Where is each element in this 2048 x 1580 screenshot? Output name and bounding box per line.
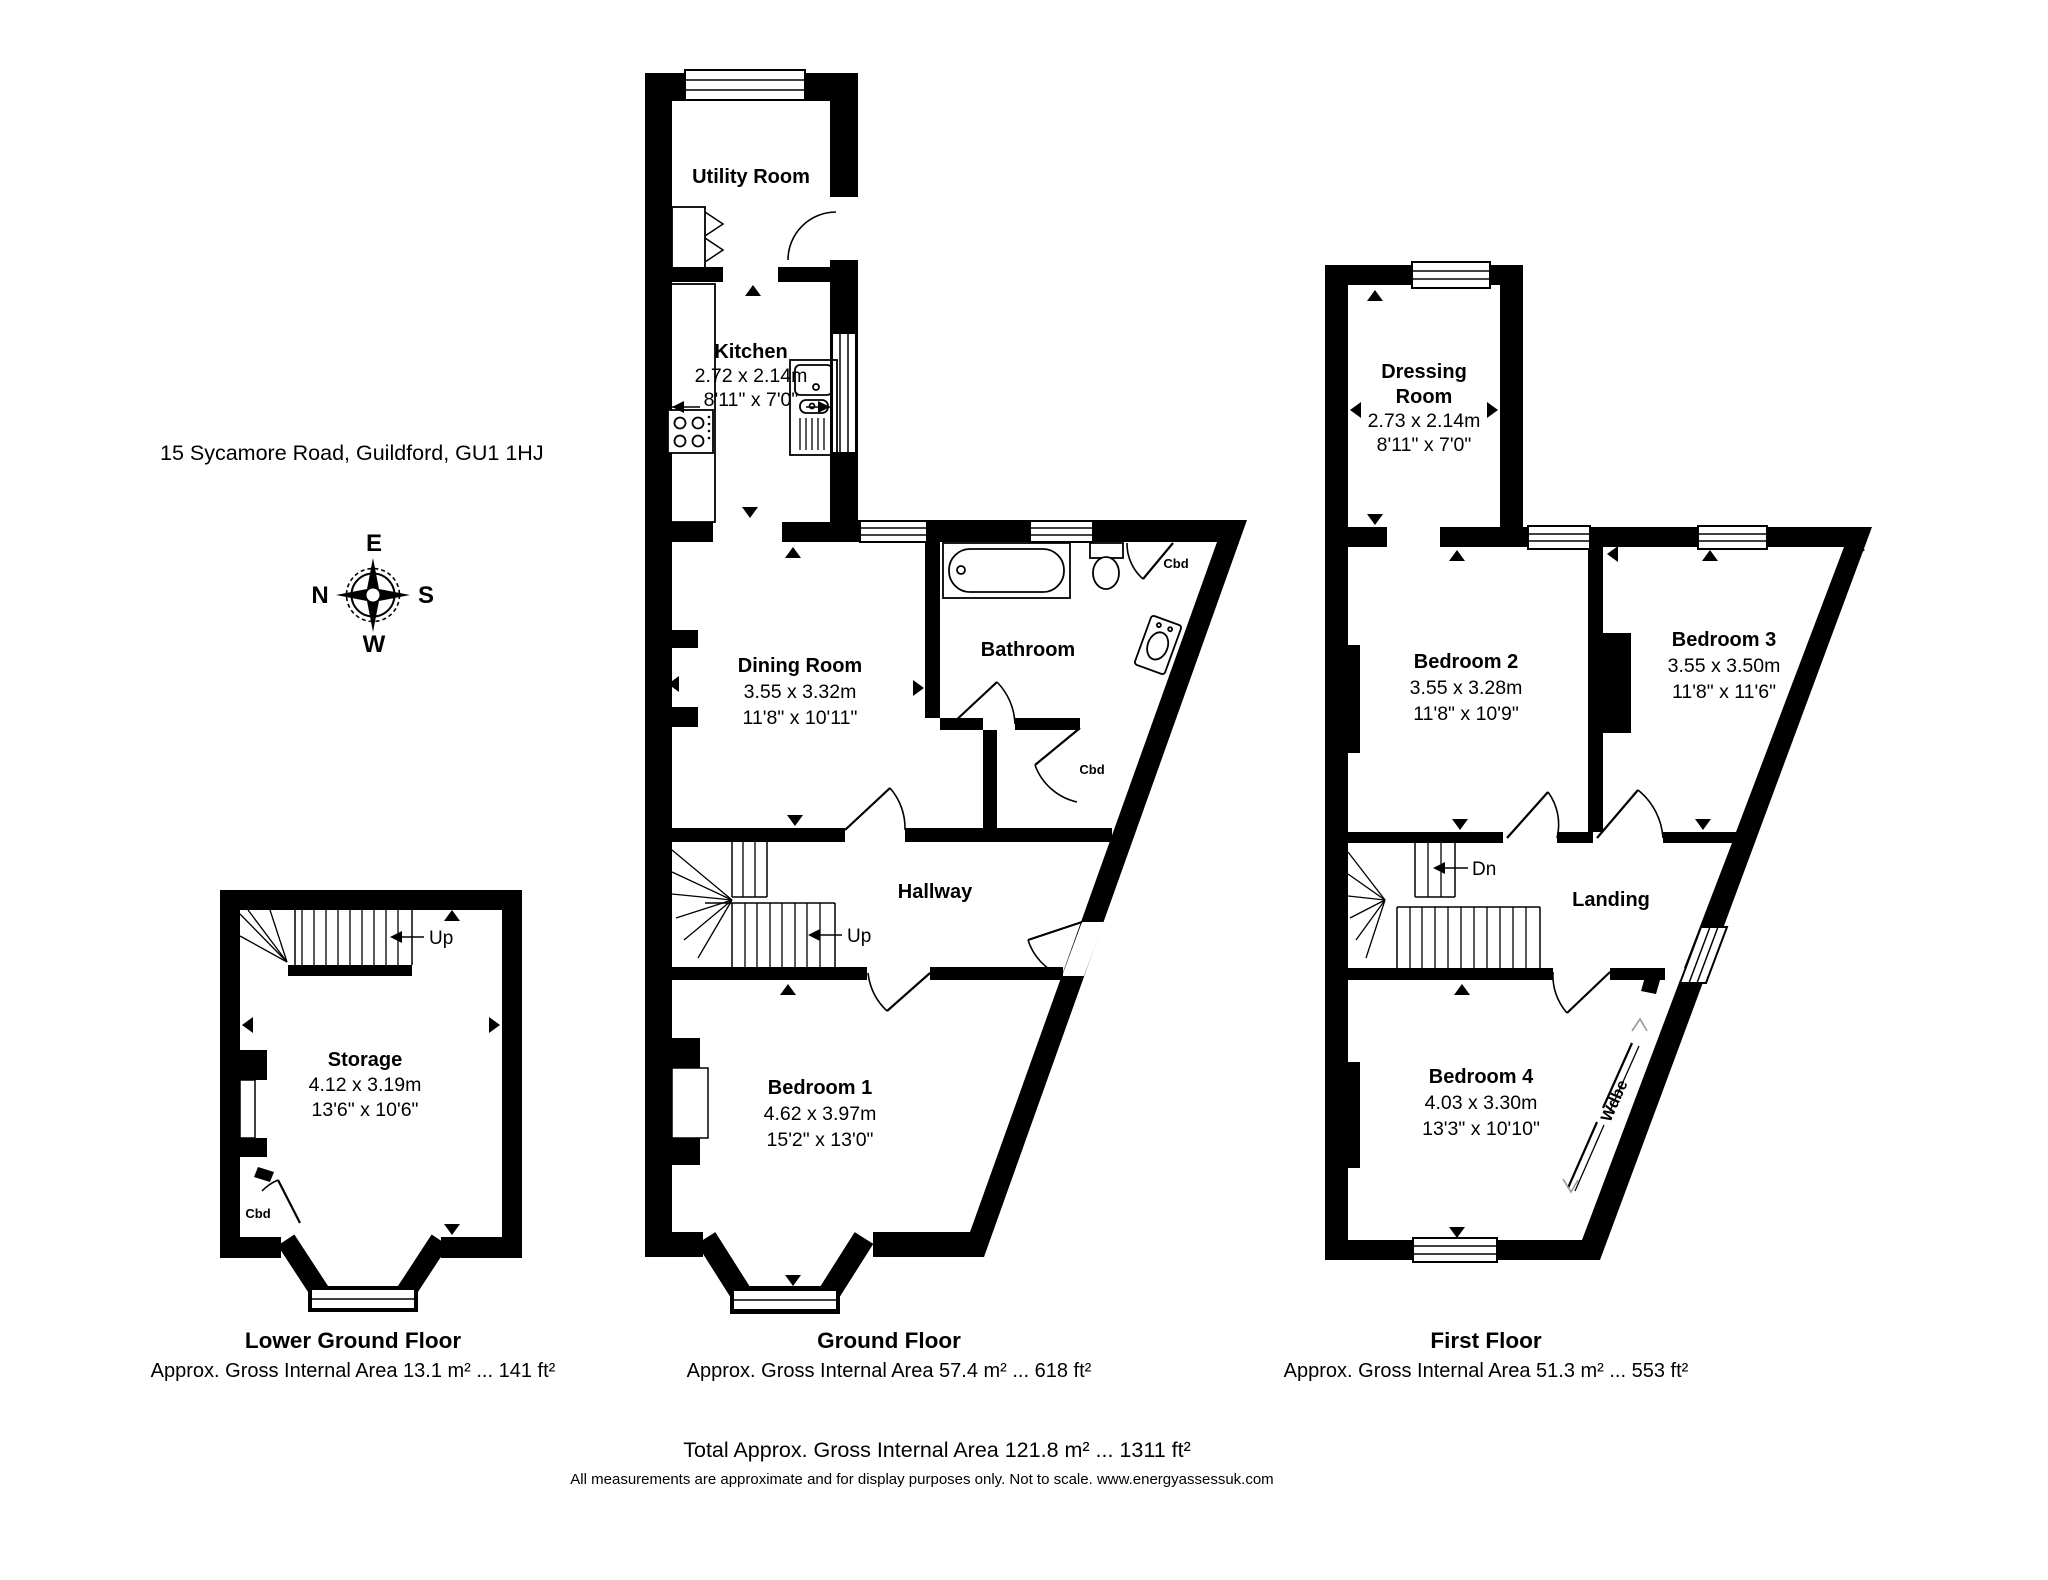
room-label-bedroom1: Bedroom 1 [768, 1077, 872, 1099]
compass-label-right: S [418, 582, 434, 609]
floor-title-ground: Ground Floor [689, 1328, 1089, 1354]
room-label-storage: Storage [328, 1049, 402, 1071]
bath-icon [943, 543, 1070, 598]
plan-first: Dn Dressing Room 2.73 x 2.14m 8'11" x 7'… [1320, 250, 1945, 1335]
room-dim-metric: 4.03 x 3.30m [1425, 1092, 1538, 1114]
window [1528, 526, 1590, 549]
room-dim-metric: 3.55 x 3.32m [744, 681, 857, 703]
compass-label-top: E [366, 530, 382, 557]
floor-area-first: Approx. Gross Internal Area 51.3 m² ... … [1236, 1360, 1736, 1383]
window [1413, 1238, 1497, 1262]
room-label-landing: Landing [1572, 889, 1650, 911]
window [1030, 521, 1093, 542]
room-label-bathroom: Bathroom [981, 639, 1075, 661]
room-label-hallway: Hallway [898, 881, 973, 903]
room-label-dining: Dining Room [738, 655, 862, 677]
room-label-kitchen: Kitchen [714, 341, 787, 363]
room-label-cbd: Cbd [1079, 762, 1104, 777]
room-dim-imperial: 11'8" x 10'9" [1413, 703, 1519, 725]
floor-area-ground: Approx. Gross Internal Area 57.4 m² ... … [639, 1360, 1139, 1383]
ff-bedroom4-chimney [1348, 1062, 1360, 1168]
ff-stairs-label: Dn [1472, 859, 1496, 880]
room-dim-imperial: 11'8" x 10'11" [743, 707, 858, 729]
room-label-bedroom3: Bedroom 3 [1672, 629, 1776, 651]
ff-bedroom2-chimney [1348, 645, 1360, 753]
room-dim-imperial: 8'11" x 7'0" [1377, 434, 1472, 456]
floorplan-page: { "header": { "address": "15 Sycamore Ro… [0, 0, 2048, 1580]
room-dim-imperial: 8'11" x 7'0" [704, 389, 799, 411]
lgf-stairs-label: Up [429, 928, 453, 949]
plan-ground: Up Utility Room Kitchen 2.72 x 2.14m 8'1… [640, 60, 1260, 1340]
room-label-bedroom4: Bedroom 4 [1429, 1066, 1534, 1088]
gf-stairs-label: Up [847, 926, 871, 947]
hob-icon [668, 410, 713, 453]
room-dim-metric: 2.72 x 2.14m [695, 365, 808, 387]
room-label-cbd: Cbd [1163, 556, 1188, 571]
room-label-dressing-1: Dressing [1381, 361, 1467, 383]
room-dim-metric: 3.55 x 3.28m [1410, 677, 1523, 699]
compass-rose-icon: E N S W [300, 520, 450, 670]
room-label-bedroom2: Bedroom 2 [1414, 651, 1518, 673]
gf-dining-chimney [672, 630, 698, 648]
floor-area-lower-ground: Approx. Gross Internal Area 13.1 m² ... … [103, 1360, 603, 1383]
gf-dining-chimney [672, 707, 698, 727]
compass-hub [367, 589, 380, 602]
room-dim-imperial: 15'2" x 13'0" [767, 1129, 874, 1151]
window [860, 521, 927, 542]
room-dim-imperial: 13'3" x 10'10" [1422, 1118, 1540, 1140]
property-address: 15 Sycamore Road, Guildford, GU1 1HJ [160, 441, 544, 466]
floor-title-lower-ground: Lower Ground Floor [153, 1328, 553, 1354]
ff-party-chimney [1603, 633, 1631, 733]
room-dim-metric: 2.73 x 2.14m [1368, 410, 1481, 432]
disclaimer: All measurements are approximate and for… [522, 1471, 1322, 1488]
plan-lower-ground: Up Storage 4.12 x 3.19m 13'6" x 10'6" Cb… [218, 888, 528, 1328]
window [832, 333, 856, 453]
room-dim-imperial: 13'6" x 10'6" [312, 1099, 419, 1121]
floor-title-first: First Floor [1286, 1328, 1686, 1354]
total-area: Total Approx. Gross Internal Area 121.8 … [637, 1438, 1237, 1463]
measure-marker [785, 1275, 801, 1286]
window [1412, 262, 1490, 288]
window [685, 70, 805, 100]
room-label-dressing-2: Room [1396, 386, 1453, 408]
room-label-utility: Utility Room [692, 166, 810, 188]
compass-label-left: N [311, 582, 328, 609]
room-dim-imperial: 11'8" x 11'6" [1672, 681, 1776, 703]
room-dim-metric: 4.12 x 3.19m [309, 1074, 422, 1096]
compass-label-bottom: W [363, 631, 386, 658]
window [1698, 526, 1767, 549]
room-label-cbd: Cbd [245, 1206, 270, 1221]
room-dim-metric: 3.55 x 3.50m [1668, 655, 1781, 677]
gf-dining-bathroom-wall [925, 542, 940, 718]
room-dim-metric: 4.62 x 3.97m [764, 1103, 877, 1125]
